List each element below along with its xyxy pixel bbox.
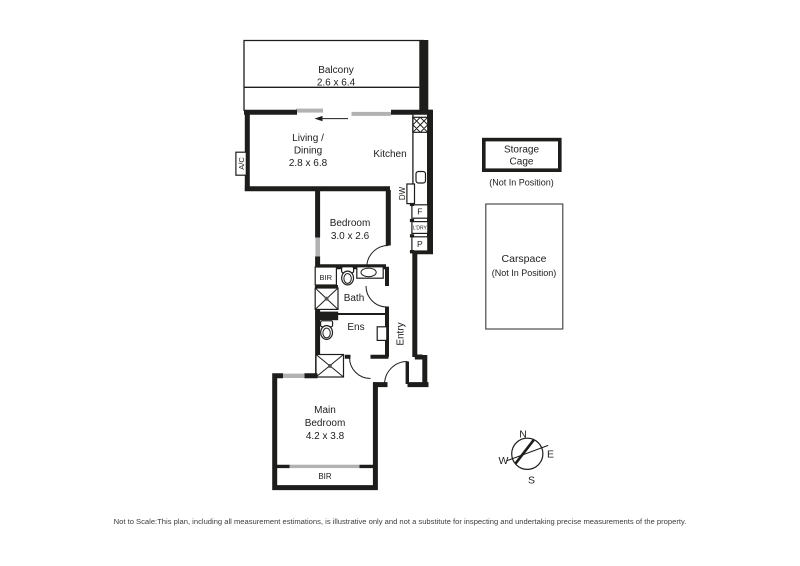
bedroom-door-arc (367, 246, 389, 268)
ens-shelf (377, 327, 387, 341)
cooktop (416, 172, 426, 184)
laundry-label: L'DRY (413, 226, 428, 232)
ac-label: A/C (237, 157, 246, 170)
balcony-label: Balcony (318, 65, 354, 76)
living-dims: 2.8 x 6.8 (289, 158, 328, 169)
kitchen-room: Kitchen DW F L'DRY P (373, 110, 433, 254)
carspace-note: (Not In Position) (492, 268, 557, 278)
ensuite-room: Ens (315, 312, 388, 379)
main-bedroom-window (283, 374, 305, 378)
bath-shower (315, 288, 338, 309)
balcony-right-wall (419, 40, 428, 112)
ens-label: Ens (347, 322, 364, 333)
compass-n: N (519, 429, 527, 441)
bath-ens-separator (315, 312, 338, 321)
compass-circle (512, 438, 543, 469)
bedroom-dims: 3.0 x 2.6 (331, 231, 370, 242)
carspace-label: Carspace (502, 253, 547, 265)
bir-main-label: BIR (318, 472, 332, 481)
floorplan-page: Balcony 2.6 x 6.4 Living / Dining 2.8 x … (0, 0, 800, 566)
carspace: Carspace (Not In Position) (486, 204, 563, 329)
bir-sliding-doors (290, 465, 360, 468)
kitchen-label: Kitchen (373, 149, 406, 160)
floorplan-svg: Balcony 2.6 x 6.4 Living / Dining 2.8 x … (0, 0, 800, 566)
main-bedroom-dims: 4.2 x 3.8 (306, 431, 345, 442)
ens-toilet (321, 321, 333, 340)
compass-s: S (528, 475, 535, 487)
compass-w: W (499, 455, 509, 467)
compass: N E W S (499, 429, 554, 487)
dw-label: DW (398, 186, 407, 200)
fridge-label: F (417, 207, 422, 217)
ens-door-arc (350, 358, 371, 379)
bedroom-label: Bedroom (330, 218, 371, 229)
main-bedroom-bir: BIR (277, 465, 373, 481)
carspace-box (486, 204, 563, 329)
kitchen-sink (413, 117, 428, 132)
main-bedroom-label-1: Main (314, 405, 336, 416)
bedroom-room: Bedroom 3.0 x 2.6 (315, 188, 388, 267)
living-label-2: Dining (294, 146, 322, 157)
main-bedroom-room: Main Bedroom 4.2 x 3.8 BIR (272, 373, 378, 489)
pantry-label: P (417, 239, 423, 249)
sliding-door-arrow-head (315, 116, 323, 121)
entry-door-arc (385, 361, 408, 384)
compass-e: E (547, 449, 554, 461)
bir-bath-label: BIR (320, 273, 333, 282)
storage-label-1: Storage (504, 145, 539, 156)
bath-basin (357, 267, 383, 278)
balcony-dims: 2.6 x 6.4 (317, 78, 356, 89)
dishwasher (407, 184, 415, 204)
bath-label: Bath (344, 293, 365, 304)
storage-cage: Storage Cage (Not In Position) (484, 140, 560, 188)
bath-door-arc (366, 286, 387, 307)
storage-note: (Not In Position) (489, 178, 554, 188)
storage-label-2: Cage (510, 157, 534, 168)
bedroom-window (315, 238, 320, 257)
bath-toilet (342, 267, 354, 285)
living-label-1: Living / (292, 133, 324, 144)
main-bedroom-label-2: Bedroom (305, 418, 346, 429)
entry-label: Entry (396, 322, 407, 345)
balcony-room: Balcony 2.6 x 6.4 (244, 40, 428, 121)
sliding-door-panel-2 (352, 112, 392, 116)
disclaimer-text: Not to Scale:This plan, including all me… (114, 517, 687, 526)
sliding-door-panel-1 (296, 109, 323, 113)
ens-shower (316, 355, 344, 378)
